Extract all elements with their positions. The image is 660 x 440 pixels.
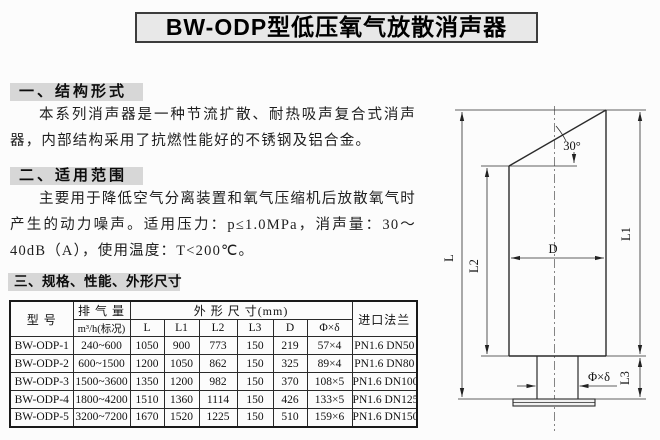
cell-flange: PN1.6 DN100 [352,373,417,391]
cell-L2: 862 [199,355,237,373]
dim-label-phi: Φ×δ [588,370,610,384]
table-row: BW-ODP-4 1800~4200 1510 1360 1114 150 42… [10,391,417,409]
col-header-L2: L2 [199,320,237,337]
col-header-L: L [130,320,164,337]
cell-D: 510 [273,409,307,427]
table-row: BW-ODP-2 600~1500 1200 1050 862 150 325 … [10,355,417,373]
cell-L1: 1520 [164,409,199,427]
cell-phi: 159×6 [307,409,352,427]
cell-L3: 150 [237,337,273,355]
cell-L2: 773 [199,337,237,355]
cell-model: BW-ODP-2 [10,355,73,373]
cell-L: 1670 [130,409,164,427]
cell-phi: 57×4 [307,337,352,355]
cell-L1: 1200 [164,373,199,391]
cell-model: BW-ODP-1 [10,337,73,355]
cell-L1: 900 [164,337,199,355]
section-body-structure: 本系列消声器是一种节流扩散、耐热吸声复合式消声器，内部结构采用了抗燃性能好的不锈… [10,102,416,154]
cell-L: 1200 [130,355,164,373]
cell-flow: 1800~4200 [73,391,130,409]
cell-L2: 1114 [199,391,237,409]
cell-D: 325 [273,355,307,373]
dim-label-L3: L3 [618,371,632,385]
silencer-body-outline [509,110,606,356]
col-header-flow: 排 气 量 [73,301,130,320]
cell-L: 1510 [130,391,164,409]
dim-label-L: L [442,254,456,262]
cell-D: 219 [273,337,307,355]
cell-flange: PN1.6 DN150 [352,409,417,427]
col-header-phi: Φ×δ [307,320,352,337]
cell-flow: 1500~3600 [73,373,130,391]
dimension-drawing: 30° L L2 L1 L3 D Φ×δ [440,95,660,440]
cell-L: 1050 [130,337,164,355]
cell-flange: PN1.6 DN50 [352,337,417,355]
page-title: BW-ODP型低压氧气放散消声器 [135,12,538,43]
col-header-D: D [273,320,307,337]
cell-flow: 600~1500 [73,355,130,373]
col-header-dims-group: 外 形 尺 寸(mm) [130,301,352,320]
dim-label-L2: L2 [467,259,481,273]
cell-D: 370 [273,373,307,391]
outlet-pipe [537,356,578,399]
cell-flow: 3200~7200 [73,409,130,427]
col-header-flow-unit: m³/h(标况) [73,320,130,337]
col-header-flange: 进口法兰 [352,301,417,337]
cell-L3: 150 [237,391,273,409]
catalog-page: BW-ODP型低压氧气放散消声器 一、结构形式 本系列消声器是一种节流扩散、耐热… [0,0,660,440]
cell-flange: PN1.6 DN80 [352,355,417,373]
cell-L1: 1050 [164,355,199,373]
table-row: BW-ODP-5 3200~7200 1670 1520 1225 150 51… [10,409,417,427]
section-heading-structure: 一、结构形式 [10,83,143,101]
cell-flow: 240~600 [73,337,130,355]
cell-L3: 150 [237,409,273,427]
cell-model: BW-ODP-5 [10,409,73,427]
cell-D: 426 [273,391,307,409]
table-row: BW-ODP-3 1500~3600 1350 1200 982 150 370… [10,373,417,391]
dim-label-L1: L1 [619,227,633,241]
cell-L2: 1225 [199,409,237,427]
col-header-L3: L3 [237,320,273,337]
cell-L3: 150 [237,355,273,373]
cell-L2: 982 [199,373,237,391]
section-heading-scope: 二、适用范围 [10,167,143,185]
section-heading-specs: 三、规格、性能、外形尺寸 [8,273,180,291]
table-row: BW-ODP-1 240~600 1050 900 773 150 219 57… [10,337,417,355]
spec-table: 型 号 排 气 量 外 形 尺 寸(mm) 进口法兰 m³/h(标况) L L1… [9,300,418,428]
cell-L3: 150 [237,373,273,391]
cell-L: 1350 [130,373,164,391]
section-body-scope: 主要用于降低空气分离装置和氧气压缩机后放散氧气时产生的动力噪声。适用压力：p≤1… [10,186,416,264]
col-header-model: 型 号 [10,301,73,337]
cell-phi: 133×5 [307,391,352,409]
cell-model: BW-ODP-3 [10,373,73,391]
cell-phi: 108×5 [307,373,352,391]
cell-model: BW-ODP-4 [10,391,73,409]
cell-flange: PN1.6 DN125 [352,391,417,409]
cell-phi: 89×4 [307,355,352,373]
col-header-L1: L1 [164,320,199,337]
cell-L1: 1360 [164,391,199,409]
dim-label-D: D [548,242,557,256]
angle-label: 30° [563,139,581,153]
